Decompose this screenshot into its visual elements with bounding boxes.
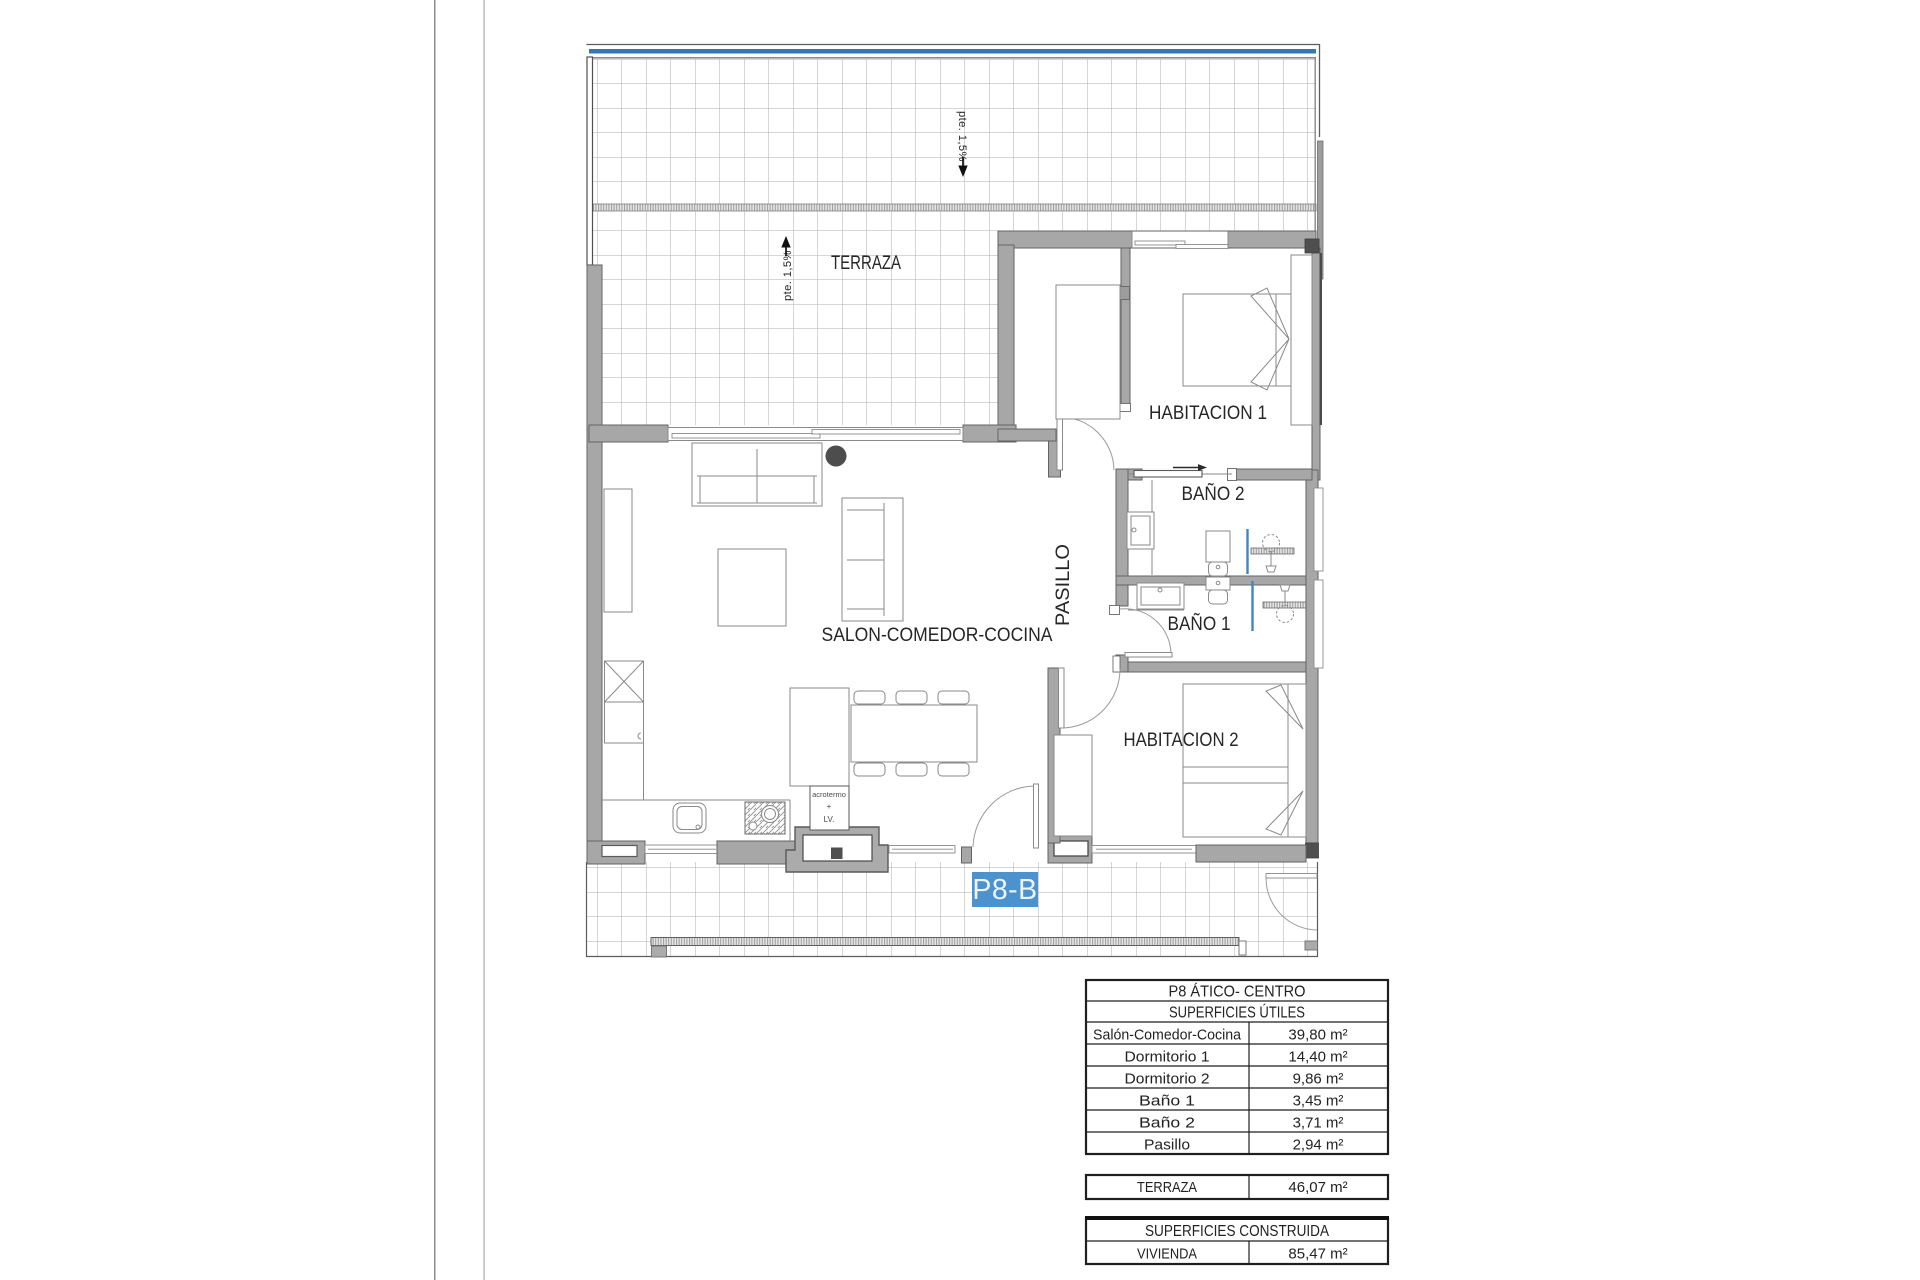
svg-text:acrotermo: acrotermo <box>812 790 846 799</box>
svg-text:14,40 m²: 14,40 m² <box>1288 1049 1347 1066</box>
svg-text:pte. 1,5%: pte. 1,5% <box>956 111 968 162</box>
svg-text:3,45 m²: 3,45 m² <box>1293 1093 1344 1110</box>
svg-text:Dormitorio 2: Dormitorio 2 <box>1125 1071 1210 1088</box>
svg-text:HABITACION 1: HABITACION 1 <box>1149 402 1267 424</box>
svg-text:46,07 m²: 46,07 m² <box>1288 1179 1347 1196</box>
svg-text:P8 ÁTICO- CENTRO: P8 ÁTICO- CENTRO <box>1169 982 1306 1001</box>
svg-text:LV.: LV. <box>824 815 835 824</box>
svg-text:Salón-Comedor-Cocina: Salón-Comedor-Cocina <box>1093 1027 1242 1044</box>
svg-text:85,47 m²: 85,47 m² <box>1288 1246 1347 1263</box>
svg-text:39,80 m²: 39,80 m² <box>1288 1027 1347 1044</box>
svg-text:P8-B: P8-B <box>972 874 1037 906</box>
svg-text:TERRAZA: TERRAZA <box>1137 1179 1197 1196</box>
svg-text:SUPERFICIES ÚTILES: SUPERFICIES ÚTILES <box>1169 1003 1305 1022</box>
svg-text:Baño 2: Baño 2 <box>1139 1115 1195 1132</box>
svg-text:SUPERFICIES CONSTRUIDA: SUPERFICIES CONSTRUIDA <box>1145 1223 1329 1240</box>
svg-text:BAÑO 1: BAÑO 1 <box>1168 611 1231 635</box>
svg-text:HABITACION 2: HABITACION 2 <box>1124 729 1239 751</box>
svg-text:SALON-COMEDOR-COCINA: SALON-COMEDOR-COCINA <box>822 624 1053 646</box>
svg-text:PASILLO: PASILLO <box>1052 544 1074 626</box>
svg-text:Pasillo: Pasillo <box>1144 1137 1190 1154</box>
svg-text:+: + <box>827 802 832 811</box>
svg-text:9,86 m²: 9,86 m² <box>1293 1071 1344 1088</box>
svg-text:VIVIENDA: VIVIENDA <box>1137 1246 1197 1263</box>
svg-text:pte. 1,5%: pte. 1,5% <box>782 250 794 301</box>
svg-text:TERRAZA: TERRAZA <box>831 252 901 274</box>
svg-text:2,94 m²: 2,94 m² <box>1293 1137 1344 1154</box>
svg-text:Baño 1: Baño 1 <box>1139 1093 1195 1110</box>
svg-text:Dormitorio 1: Dormitorio 1 <box>1125 1049 1210 1066</box>
svg-text:3,71 m²: 3,71 m² <box>1293 1115 1344 1132</box>
svg-text:BAÑO 2: BAÑO 2 <box>1182 481 1245 505</box>
